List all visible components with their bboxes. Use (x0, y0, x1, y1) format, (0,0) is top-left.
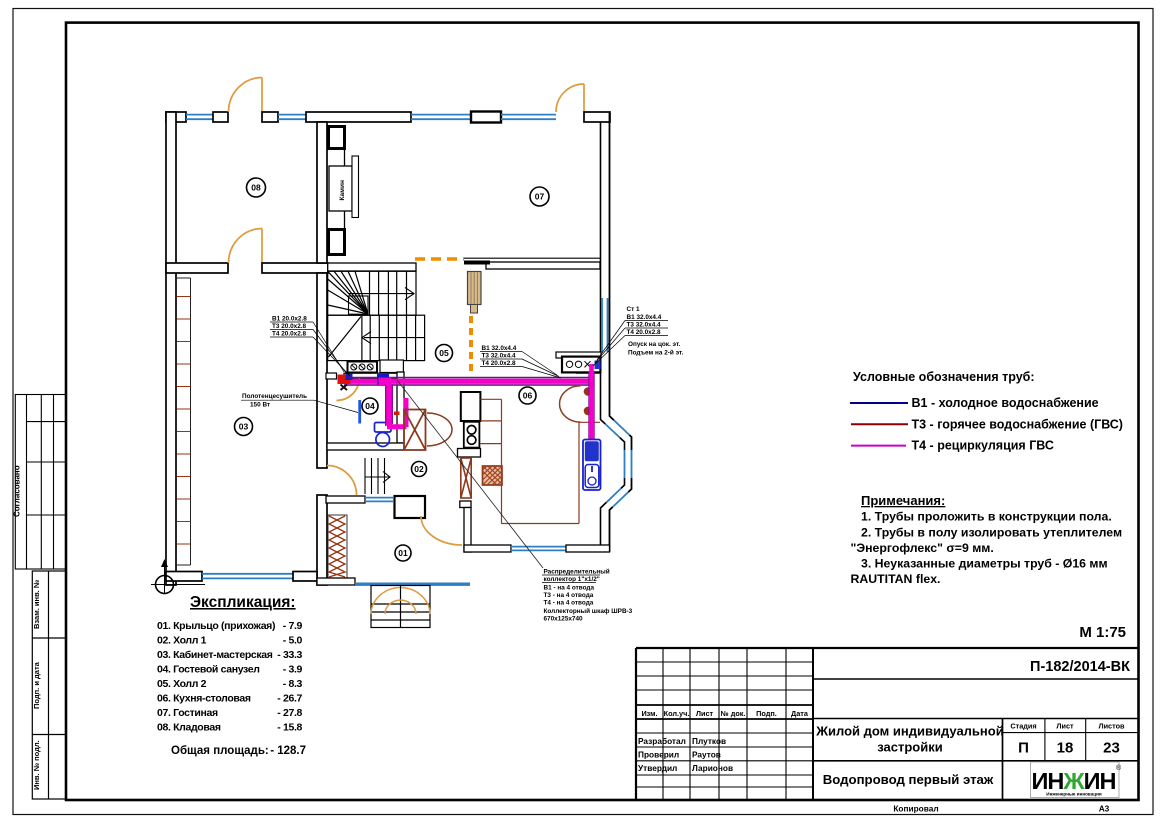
svg-text:Жилой дом индивидуальной: Жилой дом индивидуальной (815, 724, 1003, 739)
svg-text:"Энергофлекс" σ=9 мм.: "Энергофлекс" σ=9 мм. (851, 541, 994, 555)
svg-text:Водопровод первый этаж: Водопровод первый этаж (823, 772, 994, 787)
svg-text:- 3.9: - 3.9 (283, 664, 303, 676)
svg-text:Т3 - на 4 отвода: Т3 - на 4 отвода (544, 592, 594, 599)
svg-text:- 8.3: - 8.3 (283, 678, 303, 690)
svg-text:В1 - холодное водоснабжение: В1 - холодное водоснабжение (912, 396, 1099, 410)
svg-text:05. Холл 2: 05. Холл 2 (157, 678, 207, 690)
svg-text:- 26.7: - 26.7 (277, 693, 302, 705)
svg-text:05: 05 (439, 348, 449, 358)
svg-text:07: 07 (535, 192, 545, 202)
svg-text:В1 - на 4 отвода: В1 - на 4 отвода (544, 585, 595, 592)
svg-text:Т4 - на 4 отвода: Т4 - на 4 отвода (544, 600, 594, 607)
svg-text:Утвердил: Утвердил (638, 763, 677, 773)
svg-text:В1 20.0х2.8: В1 20.0х2.8 (272, 316, 307, 323)
svg-text:02: 02 (414, 464, 424, 474)
svg-text:Изм.: Изм. (641, 709, 657, 718)
svg-text:Ларионов: Ларионов (692, 763, 733, 773)
svg-text:Т4 20.0х2.8: Т4 20.0х2.8 (627, 329, 662, 336)
svg-text:18: 18 (1057, 740, 1074, 757)
svg-text:Подъем на 2-й эт.: Подъем на 2-й эт. (628, 349, 684, 357)
svg-text:®: ® (1116, 764, 1122, 772)
svg-text:Лист: Лист (1056, 722, 1074, 731)
svg-text:23: 23 (1103, 740, 1120, 757)
svg-text:Камин: Камин (339, 180, 346, 200)
svg-text:- 15.8: - 15.8 (277, 722, 302, 734)
svg-text:670х125х740: 670х125х740 (544, 616, 584, 623)
svg-text:2. Трубы в полу изолировать ут: 2. Трубы в полу изолировать утеплителем (861, 526, 1122, 540)
svg-text:Копировал: Копировал (893, 804, 938, 814)
svg-text:Примечания:: Примечания: (861, 493, 945, 508)
svg-text:Т4 20.0х2.8: Т4 20.0х2.8 (272, 331, 307, 338)
svg-text:- 33.3: - 33.3 (277, 649, 302, 661)
svg-text:А3: А3 (1099, 804, 1110, 814)
svg-text:П-182/2014-ВК: П-182/2014-ВК (1030, 659, 1130, 675)
svg-text:Инженерные инновации: Инженерные инновации (1046, 792, 1102, 797)
svg-text:Взам. инв. №: Взам. инв. № (32, 580, 41, 629)
svg-text:01. Крыльцо (прихожая): 01. Крыльцо (прихожая) (157, 620, 275, 632)
svg-text:08: 08 (251, 183, 261, 193)
svg-text:Т4 - рециркуляция ГВС: Т4 - рециркуляция ГВС (912, 439, 1054, 453)
svg-text:Т3 32.0х4.4: Т3 32.0х4.4 (627, 322, 662, 329)
svg-text:1. Трубы проложить в конструкц: 1. Трубы проложить в конструкции пола. (861, 510, 1112, 524)
svg-text:Распределительный: Распределительный (544, 568, 610, 576)
svg-text:Плутков: Плутков (692, 736, 726, 746)
svg-text:- 7.9: - 7.9 (283, 620, 303, 632)
svg-text:П: П (1018, 740, 1029, 757)
svg-text:04: 04 (365, 401, 375, 411)
svg-text:Дата: Дата (791, 709, 809, 718)
svg-text:Лист: Лист (696, 709, 714, 718)
svg-text:№ док.: № док. (721, 709, 746, 718)
svg-text:ИНЖИН: ИНЖИН (1032, 768, 1116, 794)
svg-text:03. Кабинет-мастерская: 03. Кабинет-мастерская (157, 649, 273, 661)
svg-text:3. Неуказанные диаметры труб -: 3. Неуказанные диаметры труб - Ø16 мм (861, 557, 1108, 571)
svg-text:Раутов: Раутов (692, 750, 721, 760)
svg-text:01: 01 (398, 548, 408, 558)
svg-text:Экспликация:: Экспликация: (190, 594, 296, 611)
svg-text:коллектор 1"х1/2": коллектор 1"х1/2" (544, 576, 600, 583)
svg-text:Т3 32.0х4.4: Т3 32.0х4.4 (482, 353, 517, 360)
svg-text:Кол.уч.: Кол.уч. (664, 709, 690, 718)
svg-text:Т3 20.0х2.8: Т3 20.0х2.8 (272, 323, 307, 330)
svg-text:Инв. № подл.: Инв. № подл. (32, 740, 41, 790)
svg-text:- 5.0: - 5.0 (283, 635, 303, 647)
svg-text:Общая площадь:: Общая площадь: (171, 745, 269, 757)
svg-text:03: 03 (239, 422, 249, 432)
svg-text:08. Кладовая: 08. Кладовая (157, 722, 221, 734)
svg-text:М 1:75: М 1:75 (1079, 624, 1126, 641)
svg-text:Коллекторный шкаф ШРВ-3: Коллекторный шкаф ШРВ-3 (544, 607, 633, 615)
svg-text:- 128.7: - 128.7 (270, 745, 306, 757)
svg-text:Подп. и дата: Подп. и дата (32, 661, 41, 709)
svg-text:06: 06 (523, 391, 533, 401)
svg-text:Подп.: Подп. (756, 709, 777, 718)
svg-text:застройки: застройки (877, 740, 943, 755)
svg-text:Условные обозначения труб:: Условные обозначения труб: (853, 370, 1035, 384)
svg-text:RAUTITAN flex.: RAUTITAN flex. (851, 572, 941, 586)
svg-text:Согласовано: Согласовано (13, 465, 22, 517)
svg-text:150 Вт: 150 Вт (250, 402, 270, 409)
svg-text:Т3 - горячее водоснабжение (ГВ: Т3 - горячее водоснабжение (ГВС) (912, 418, 1123, 432)
svg-text:Разработал: Разработал (638, 736, 686, 746)
svg-text:02. Холл 1: 02. Холл 1 (157, 635, 207, 647)
svg-text:Проверил: Проверил (638, 750, 679, 760)
svg-text:В1 32.0х4.4: В1 32.0х4.4 (482, 345, 517, 352)
svg-text:07. Гостиная: 07. Гостиная (157, 707, 218, 719)
svg-text:04. Гостевой санузел: 04. Гостевой санузел (157, 664, 260, 676)
svg-text:Опуск на цок. эт.: Опуск на цок. эт. (628, 341, 681, 348)
svg-text:Листов: Листов (1098, 722, 1125, 731)
svg-text:06. Кухня-столовая: 06. Кухня-столовая (157, 693, 251, 705)
svg-text:В1 32.0х4.4: В1 32.0х4.4 (627, 314, 662, 321)
svg-text:- 27.8: - 27.8 (277, 707, 302, 719)
svg-text:Т4 20.0х2.8: Т4 20.0х2.8 (482, 360, 517, 367)
svg-text:Ст 1: Ст 1 (627, 306, 641, 313)
svg-text:Полотенцесушитель: Полотенцесушитель (242, 393, 307, 400)
svg-text:Стадия: Стадия (1010, 722, 1036, 731)
